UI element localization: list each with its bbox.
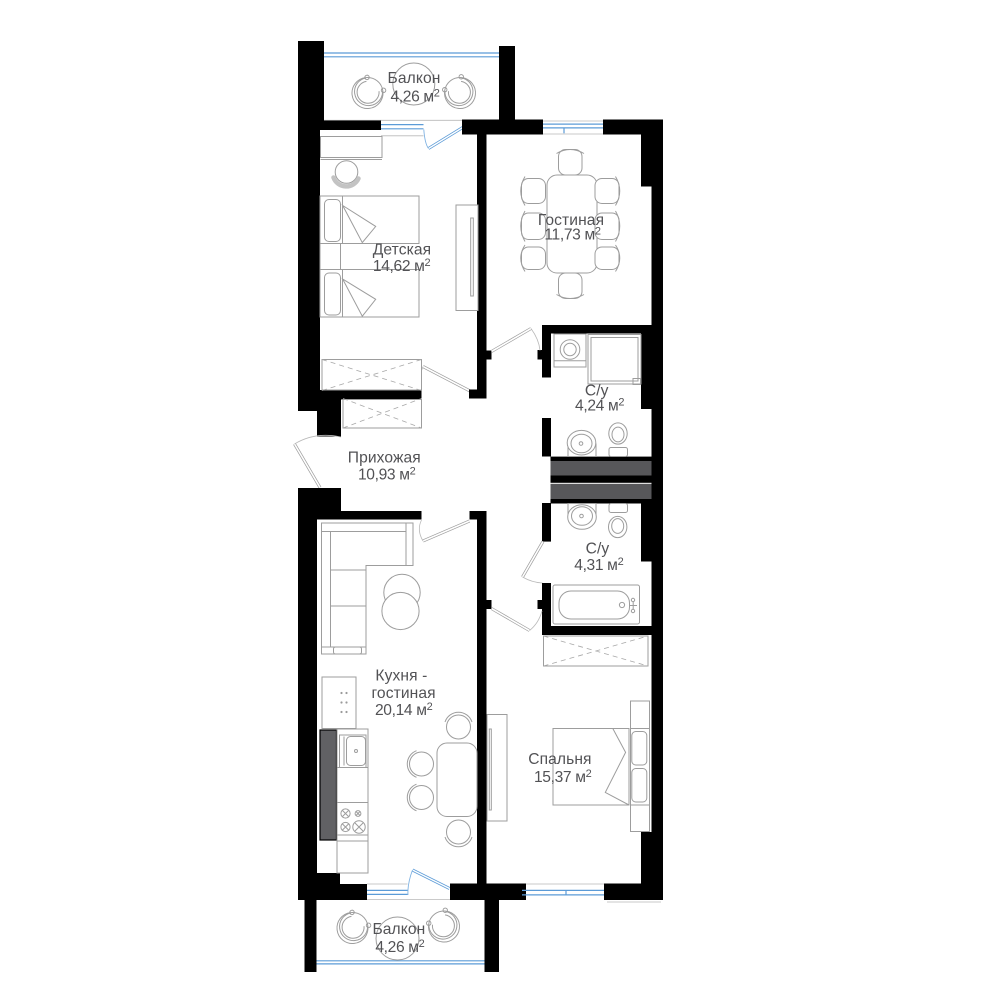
svg-text:Прихожая: Прихожая: [348, 450, 421, 467]
svg-text:15,37 м2: 15,37 м2: [534, 768, 592, 786]
svg-text:Детская: Детская: [373, 241, 431, 258]
svg-text:Балкон: Балкон: [388, 70, 441, 87]
svg-text:Спальня: Спальня: [528, 751, 591, 768]
svg-text:С/у: С/у: [586, 541, 610, 558]
svg-text:4,26 м2: 4,26 м2: [375, 938, 424, 956]
svg-text:Кухня -: Кухня -: [375, 667, 427, 684]
svg-text:4,24 м2: 4,24 м2: [575, 396, 624, 414]
svg-text:4,31 м2: 4,31 м2: [574, 556, 623, 574]
svg-text:гостиная: гостиная: [371, 685, 435, 702]
svg-text:4,26 м2: 4,26 м2: [390, 88, 439, 106]
svg-text:Балкон: Балкон: [372, 921, 425, 938]
svg-text:20,14 м2: 20,14 м2: [375, 701, 433, 719]
svg-text:14,62 м2: 14,62 м2: [373, 257, 431, 275]
svg-text:11,73 м2: 11,73 м2: [544, 226, 600, 244]
svg-text:10,93 м2: 10,93 м2: [358, 466, 416, 484]
